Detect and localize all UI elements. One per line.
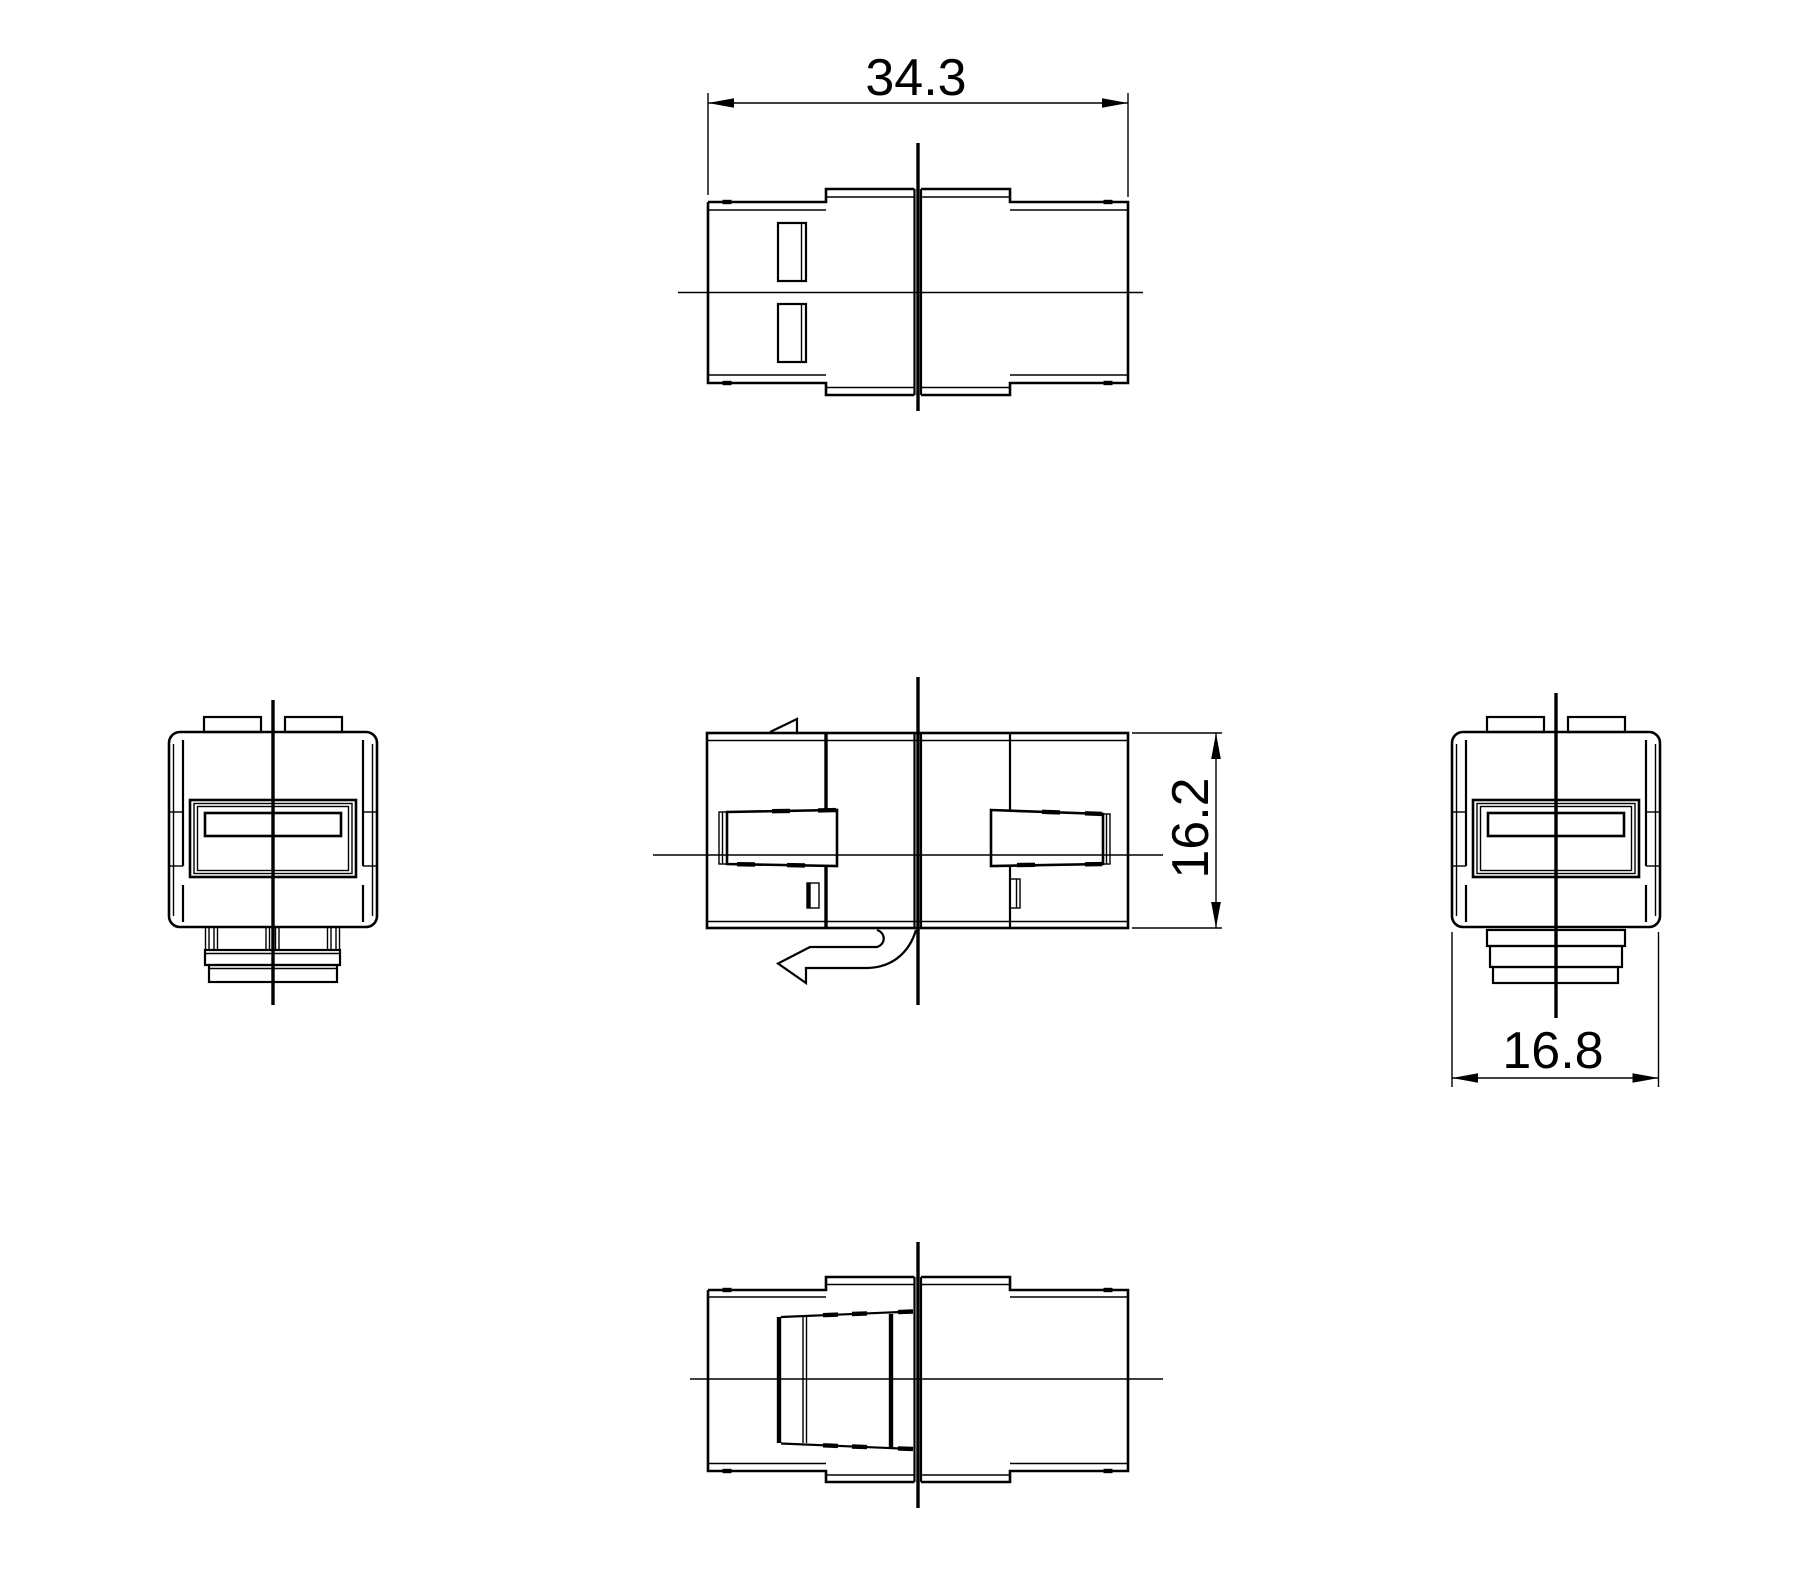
left-view-top-tab-left xyxy=(204,717,261,732)
drawing-sheet: 34.3 xyxy=(0,0,1812,1596)
front-view-right-latch-tab xyxy=(991,810,1110,866)
bottom-view xyxy=(690,1242,1163,1508)
dimension-arrow-top xyxy=(1211,733,1221,759)
left-side-view xyxy=(169,700,377,1005)
dimension-arrow-right xyxy=(1633,1073,1659,1083)
dimension-value-body-height: 16.2 xyxy=(1162,777,1220,878)
dimension-value-body-width: 16.8 xyxy=(1502,1022,1603,1080)
front-view xyxy=(653,677,1163,1005)
bottom-view-plug-boot xyxy=(779,1312,913,1450)
right-side-view xyxy=(1452,693,1660,1018)
front-view-left-clip xyxy=(807,883,819,908)
dimension-arrow-left xyxy=(708,98,734,108)
front-view-left-latch-tab xyxy=(719,810,837,866)
right-view-top-tab-right xyxy=(1568,717,1625,732)
dimension-value-top-width: 34.3 xyxy=(865,49,966,107)
front-view-latch-tip xyxy=(770,719,797,732)
drawing-canvas: 34.3 xyxy=(0,0,1812,1596)
release-direction-arrow xyxy=(778,930,916,983)
right-view-top-tab-left xyxy=(1487,717,1544,732)
dimension-arrow-left xyxy=(1452,1073,1478,1083)
dimension-arrow-right xyxy=(1102,98,1128,108)
dimension-body-height: 16.2 xyxy=(1132,733,1222,928)
left-view-top-tab-right xyxy=(285,717,342,732)
front-view-right-clip xyxy=(1010,879,1020,908)
dimension-arrow-bottom xyxy=(1211,902,1221,928)
top-view xyxy=(678,143,1143,411)
